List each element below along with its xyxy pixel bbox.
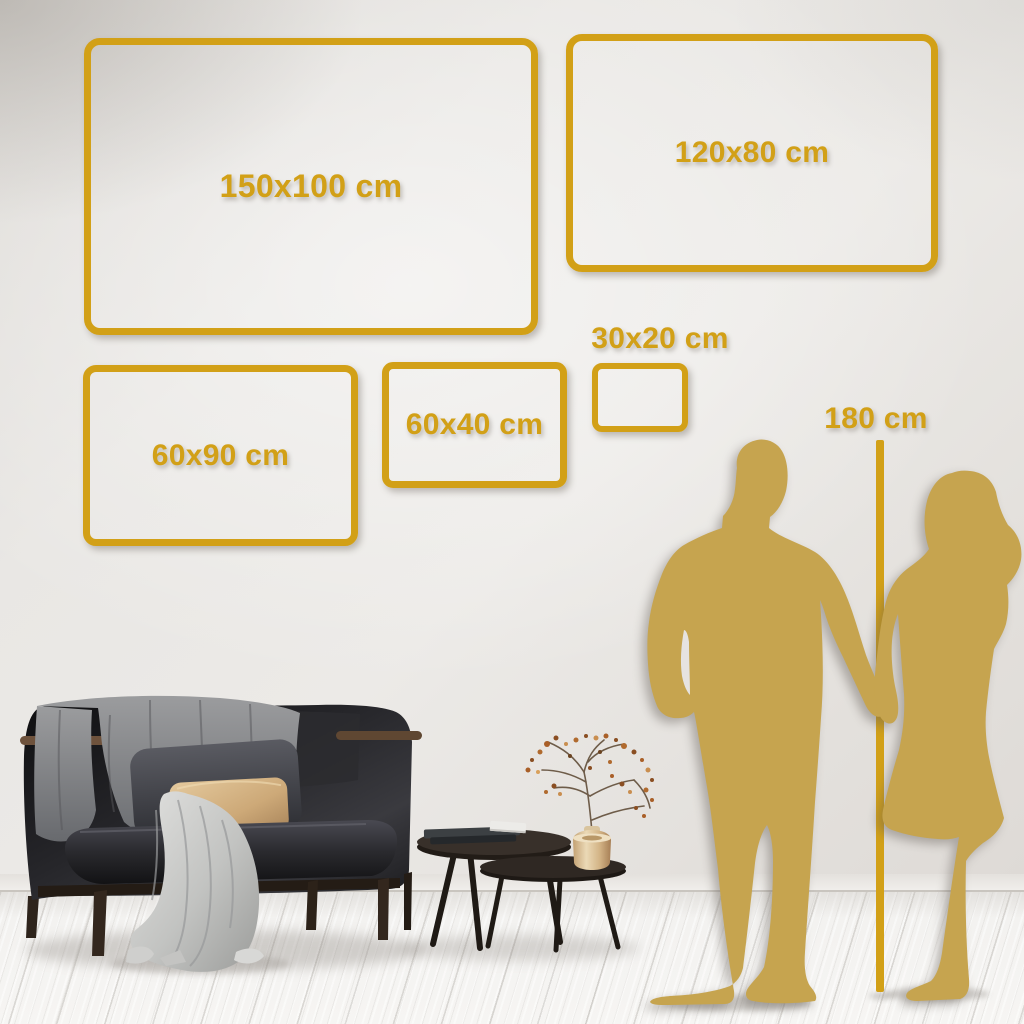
books (424, 821, 526, 845)
size-guide-image: 150x100 cm 120x80 cm 60x90 cm 60x40 cm 3… (0, 0, 1024, 1024)
couple-silhouette (647, 439, 1021, 1005)
size-label-60x40: 60x40 cm (406, 408, 544, 442)
size-frame-60x90: 60x90 cm (83, 365, 358, 546)
size-frame-60x40: 60x40 cm (382, 362, 567, 488)
sofa (20, 696, 422, 972)
size-frame-30x20 (592, 363, 688, 432)
man-silhouette (647, 439, 886, 1005)
size-frame-150x100: 150x100 cm (84, 38, 538, 335)
woman-silhouette (875, 471, 1022, 1001)
size-label-30x20: 30x20 cm (591, 322, 729, 355)
height-reference-label: 180 cm (824, 402, 928, 435)
dried-branch (526, 734, 655, 833)
size-frame-120x80: 120x80 cm (566, 34, 938, 272)
size-label-150x100: 150x100 cm (220, 168, 403, 205)
size-label-120x80: 120x80 cm (675, 136, 830, 170)
sofa-wood-rail-right (336, 731, 422, 740)
size-label-60x90: 60x90 cm (152, 439, 290, 473)
